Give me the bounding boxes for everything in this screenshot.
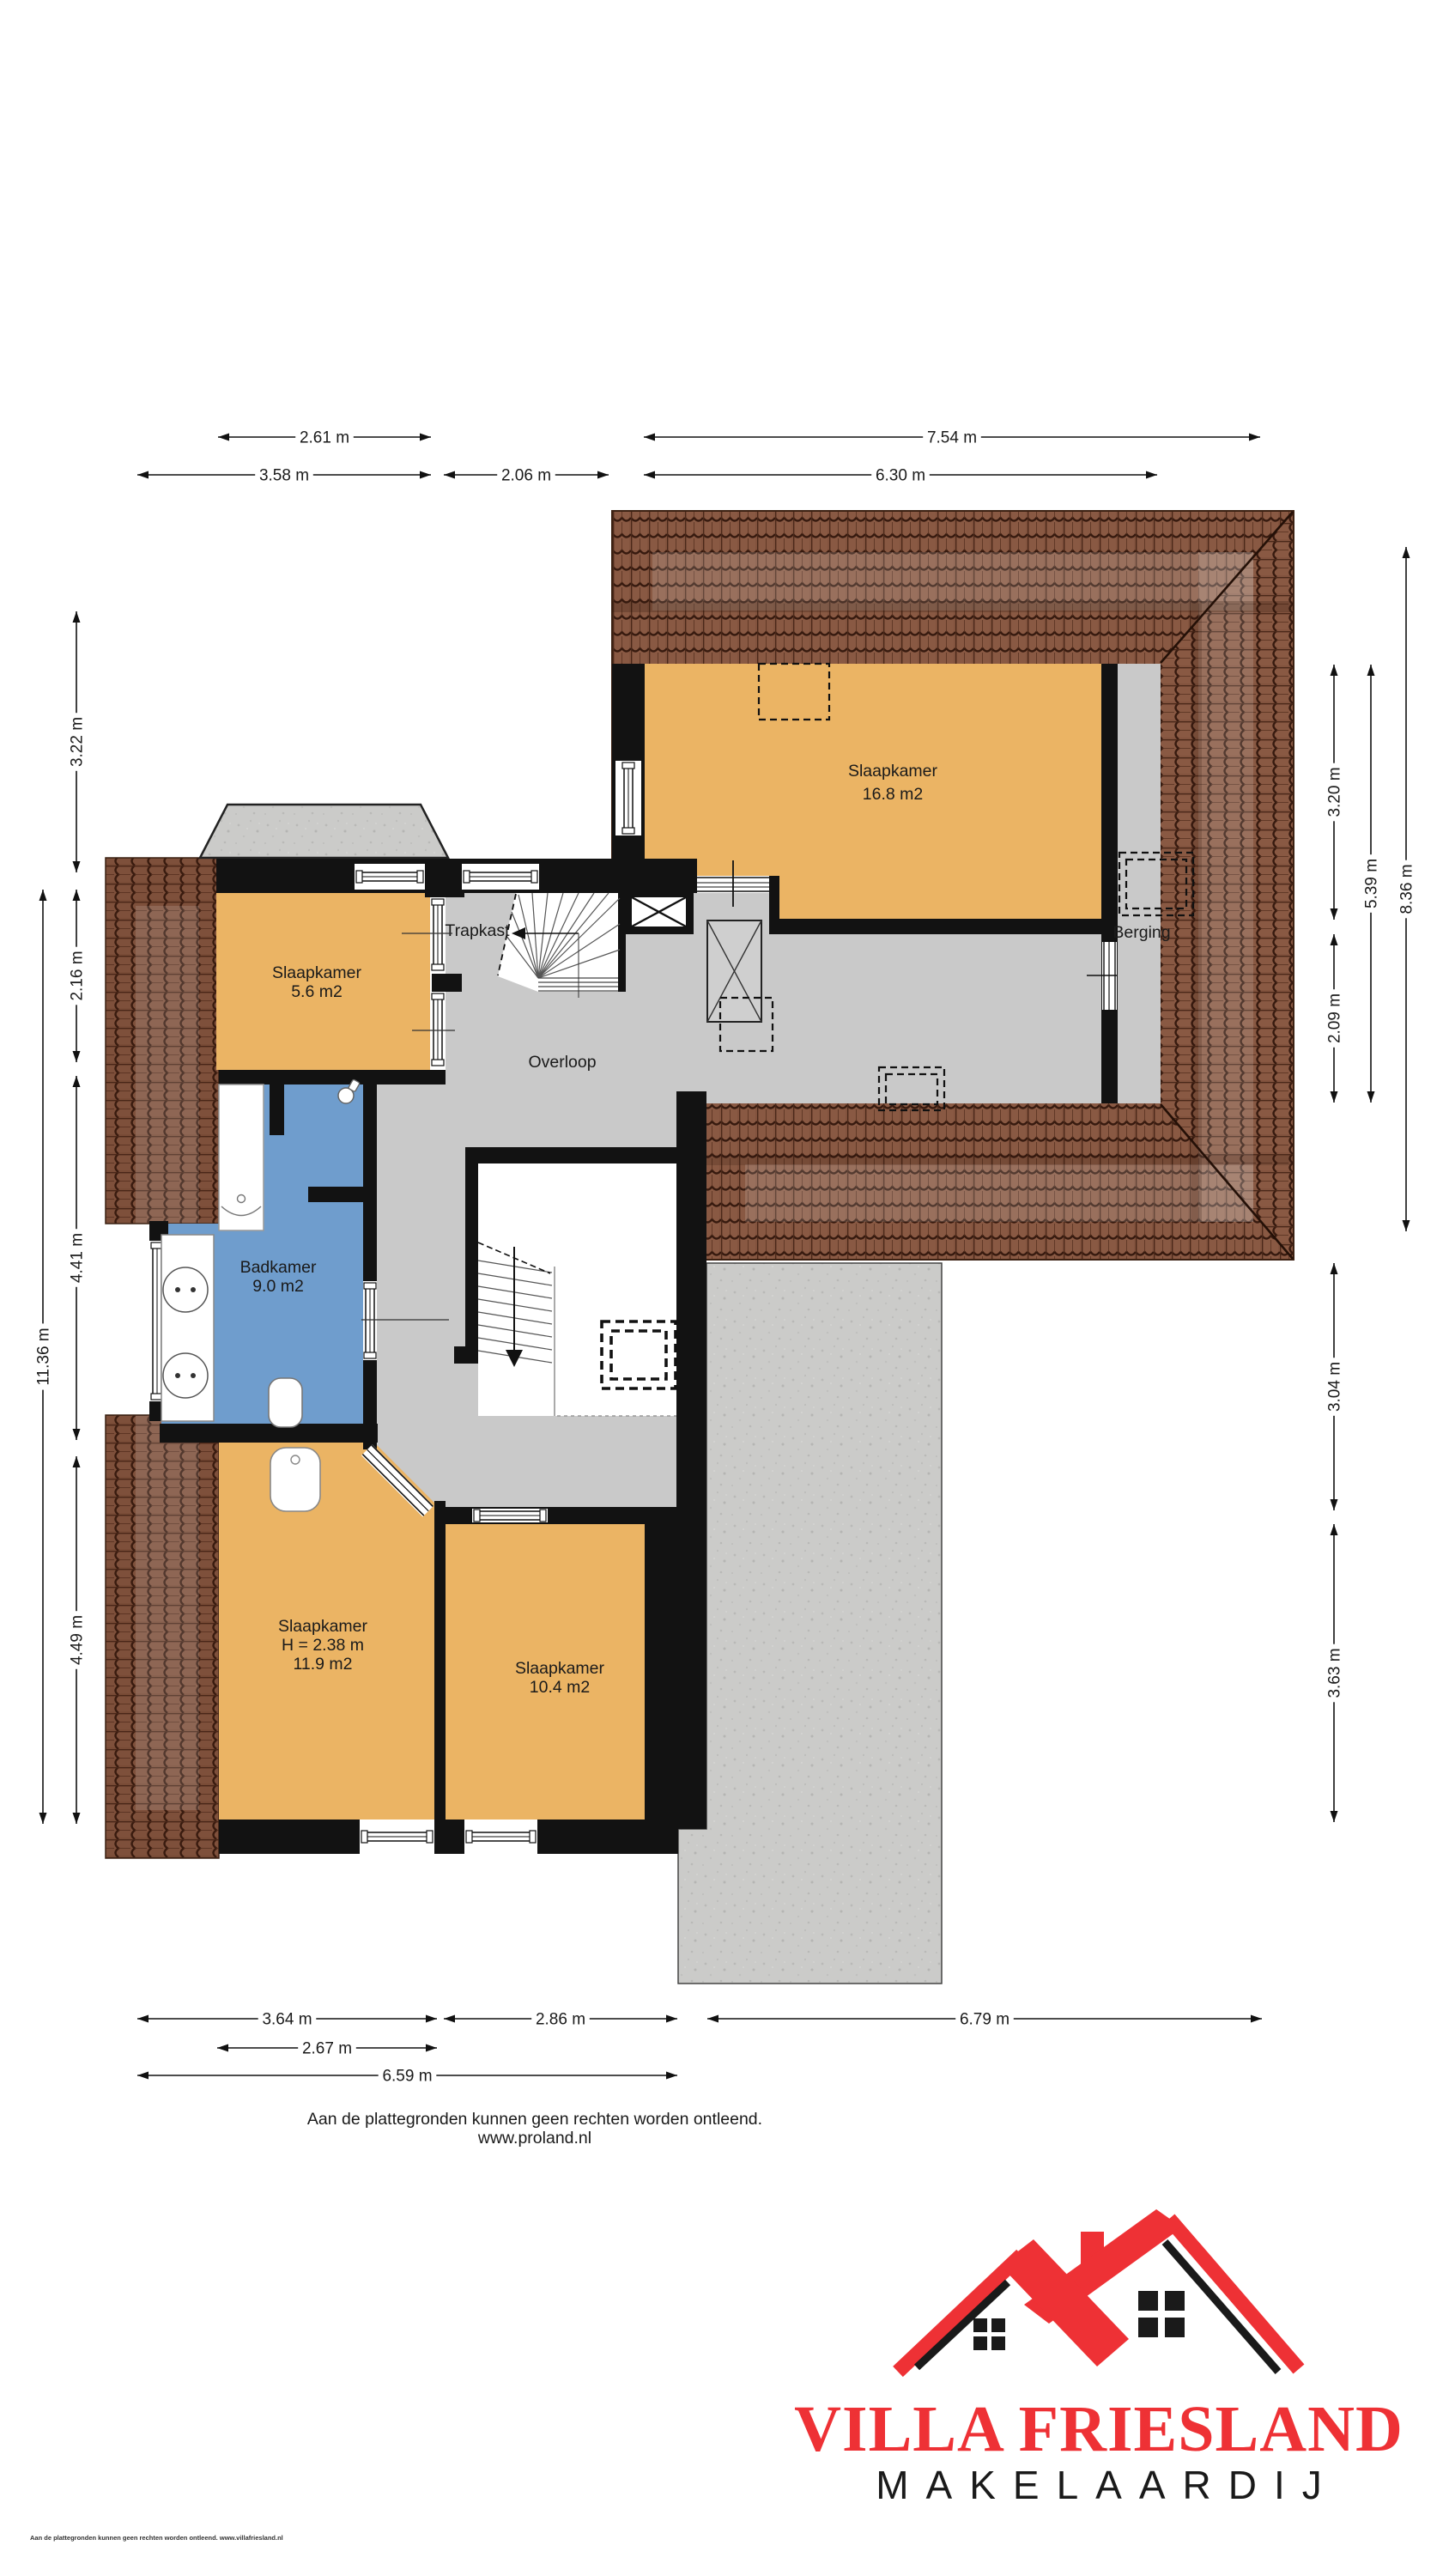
svg-text:6.79 m: 6.79 m — [960, 2011, 1009, 2029]
svg-text:5.39 m: 5.39 m — [1363, 859, 1381, 908]
svg-text:Aan de plattegronden kunnen ge: Aan de plattegronden kunnen geen rechten… — [307, 2110, 762, 2129]
svg-text:3.20 m: 3.20 m — [1326, 767, 1344, 817]
svg-text:9.0 m2: 9.0 m2 — [252, 1277, 304, 1296]
svg-text:www.proland.nl: www.proland.nl — [477, 2129, 591, 2148]
svg-text:Berging: Berging — [1113, 923, 1170, 942]
svg-text:2.16 m: 2.16 m — [69, 951, 87, 1000]
svg-text:4.49 m: 4.49 m — [69, 1615, 87, 1665]
svg-text:6.30 m: 6.30 m — [876, 467, 925, 485]
svg-text:Slaapkamer: Slaapkamer — [272, 963, 362, 982]
svg-text:6.59 m: 6.59 m — [382, 2068, 432, 2086]
svg-text:Aan de plattegronden kunnen ge: Aan de plattegronden kunnen geen rechten… — [30, 2534, 283, 2542]
svg-text:2.06 m: 2.06 m — [501, 467, 551, 485]
svg-text:2.09 m: 2.09 m — [1326, 993, 1344, 1043]
svg-text:10.4 m2: 10.4 m2 — [530, 1678, 590, 1697]
svg-text:2.67 m: 2.67 m — [302, 2040, 352, 2058]
svg-text:Slaapkamer: Slaapkamer — [515, 1659, 605, 1678]
svg-text:3.58 m: 3.58 m — [259, 467, 309, 485]
svg-text:Trapkast: Trapkast — [445, 921, 510, 940]
svg-text:Badkamer: Badkamer — [240, 1258, 317, 1277]
svg-text:16.8 m2: 16.8 m2 — [863, 785, 923, 804]
svg-text:11.9 m2: 11.9 m2 — [293, 1655, 352, 1674]
svg-text:7.54 m: 7.54 m — [927, 429, 977, 447]
svg-text:H = 2.38 m: H = 2.38 m — [282, 1636, 364, 1655]
svg-text:MAKELAARDIJ: MAKELAARDIJ — [876, 2463, 1339, 2507]
svg-text:4.41 m: 4.41 m — [69, 1233, 87, 1283]
svg-text:Slaapkamer: Slaapkamer — [848, 762, 938, 781]
svg-text:2.61 m: 2.61 m — [300, 429, 349, 447]
svg-text:3.63 m: 3.63 m — [1326, 1648, 1344, 1698]
svg-text:5.6 m2: 5.6 m2 — [291, 982, 343, 1001]
svg-text:8.36 m: 8.36 m — [1398, 864, 1416, 914]
svg-text:VILLA FRIESLAND: VILLA FRIESLAND — [794, 2393, 1404, 2465]
svg-text:2.86 m: 2.86 m — [536, 2011, 585, 2029]
svg-text:3.04 m: 3.04 m — [1326, 1362, 1344, 1412]
svg-text:Overloop: Overloop — [528, 1053, 596, 1072]
svg-text:3.22 m: 3.22 m — [69, 717, 87, 767]
svg-text:3.64 m: 3.64 m — [262, 2011, 312, 2029]
svg-text:11.36 m: 11.36 m — [35, 1327, 53, 1385]
svg-text:Slaapkamer: Slaapkamer — [278, 1617, 368, 1636]
